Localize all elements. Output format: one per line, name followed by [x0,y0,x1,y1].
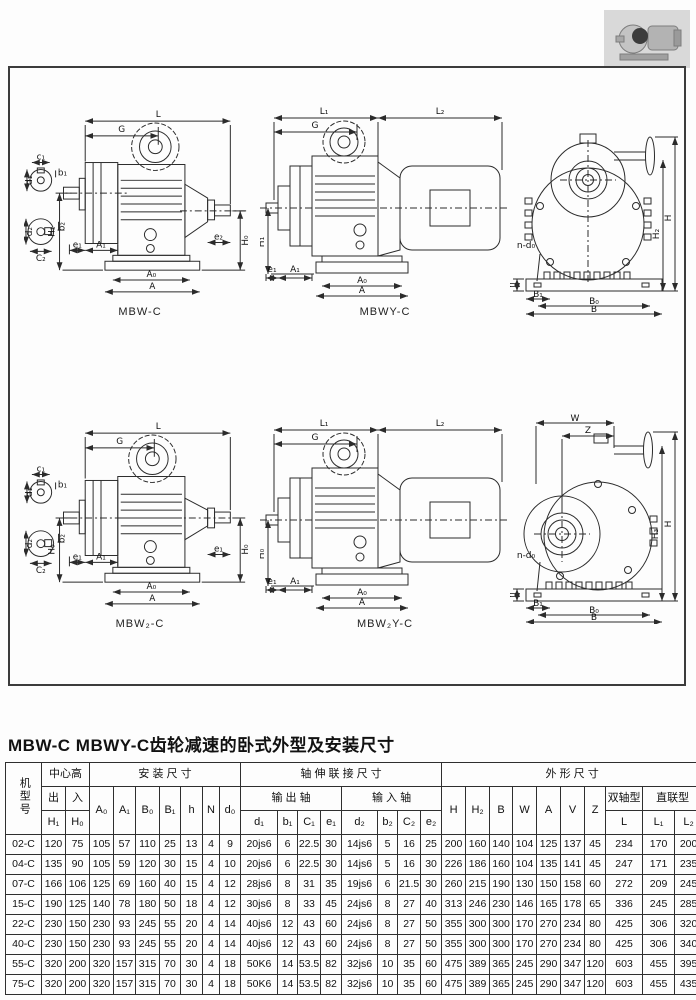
value-cell: 270 [537,935,561,955]
dim-label-A0: A₀ [147,582,157,592]
dim-label-b2: b₂ [57,534,67,543]
value-cell: 14js6 [342,835,378,855]
dim-label-A1: A₁ [96,552,106,562]
model-cell: 15-C [6,895,42,915]
value-cell: 40js6 [241,915,278,935]
mbw2y-c-side-view-drawing: L₁ L₂ G H₀ e₁ A₁ A₀ A [260,416,510,616]
dim-label-A1: A₁ [290,577,300,587]
value-cell: 171 [643,855,675,875]
header-out: 出 [42,787,66,811]
value-cell: 190 [42,895,66,915]
table-row: 02-C120751055711025134920js6622.53014js6… [6,835,696,855]
dimension-table: 机型号 中心高 安 装 尺 寸 轴 伸 联 接 尺 寸 外 形 尺 寸 出 入 … [5,762,696,995]
value-cell: 158 [561,875,585,895]
header-W: W [513,787,537,835]
value-cell: 4 [203,915,220,935]
value-cell: 200 [66,955,90,975]
value-cell: 425 [606,915,643,935]
value-cell: 82 [321,955,342,975]
value-cell: 475 [442,975,466,995]
value-cell: 12 [278,915,298,935]
dim-label-h: h [510,592,517,598]
dim-label-H0: H₀ [241,235,251,246]
value-cell: 230 [490,895,513,915]
model-cell: 55-C [6,955,42,975]
value-cell: 340 [675,935,696,955]
value-cell: 150 [66,915,90,935]
value-cell: 230 [90,915,114,935]
table-row: 07-C16610612569160401541228js68313519js6… [6,875,696,895]
value-cell: 272 [606,875,643,895]
value-cell: 16 [398,855,421,875]
value-cell: 300 [490,915,513,935]
value-cell: 20js6 [241,835,278,855]
header-center-height: 中心高 [42,763,90,787]
front-view-bottom-drawing: W Z n-d₀ h B₁ B₀ B H₃ H [510,414,682,624]
dim-label-A: A [149,282,155,292]
value-cell: 104 [513,855,537,875]
value-cell: 70 [160,955,181,975]
value-cell: 8 [278,875,298,895]
dim-label-ndo: n-d₀ [517,241,536,251]
value-cell: 55 [160,915,181,935]
value-cell: 355 [442,915,466,935]
value-cell: 234 [561,915,585,935]
value-cell: 5 [378,835,398,855]
dim-label-b1: b₁ [58,168,68,178]
value-cell: 30 [321,835,342,855]
dim-label-A0: A₀ [357,588,367,598]
dim-label-A: A [359,598,366,608]
value-cell: 166 [42,875,66,895]
value-cell: 19js6 [342,875,378,895]
header-B0: B₀ [136,787,160,835]
value-cell: 435 [675,975,696,995]
value-cell: 320 [90,975,114,995]
value-cell: 336 [606,895,643,915]
value-cell: 365 [490,955,513,975]
header-model: 机型号 [6,763,42,835]
dim-label-b2: b₂ [57,222,67,231]
dim-label-A1: A₁ [96,240,106,250]
value-cell: 12 [220,875,241,895]
value-cell: 300 [466,915,490,935]
value-cell: 105 [90,855,114,875]
value-cell: 30 [421,875,442,895]
value-cell: 245 [513,975,537,995]
value-cell: 137 [561,835,585,855]
value-cell: 6 [278,855,298,875]
value-cell: 75 [66,835,90,855]
value-cell: 45 [585,855,606,875]
dim-label-L1: L₁ [320,419,329,429]
value-cell: 20 [181,935,203,955]
value-cell: 230 [42,915,66,935]
value-cell: 69 [114,875,136,895]
value-cell: 35 [321,875,342,895]
dim-label-e2: e₂ [214,233,223,243]
header-shaft: 轴 伸 联 接 尺 寸 [241,763,442,787]
value-cell: 120 [136,855,160,875]
table-row: 22-C23015023093245552041440js612436024js… [6,915,696,935]
catalog-page: L G c₁ b₁ d₁ b₂ d₂ C₂ H₁ H₀ e₁ A₁ e₂ A₀ … [0,0,696,1000]
drawing-geometry [26,121,247,292]
header-b2: b₂ [378,811,398,835]
value-cell: 200 [442,835,466,855]
value-cell: 150 [537,875,561,895]
value-cell: 320 [42,975,66,995]
drawing-caption-mbw: MBW-C [24,306,256,318]
dim-label-A0: A₀ [147,270,157,280]
dim-label-H: H [664,521,674,528]
value-cell: 80 [585,935,606,955]
value-cell: 200 [66,975,90,995]
dim-label-G: G [116,437,123,447]
value-cell: 245 [643,895,675,915]
value-cell: 234 [606,835,643,855]
value-cell: 135 [42,855,66,875]
value-cell: 160 [490,855,513,875]
value-cell: 603 [606,955,643,975]
header-H0: H₀ [66,811,90,835]
value-cell: 8 [378,935,398,955]
value-cell: 32js6 [342,975,378,995]
value-cell: 30 [421,855,442,875]
dim-label-ndo: n-d₀ [517,551,536,561]
page-title: MBW-C MBWY-C齿轮减速的卧式外型及安装尺寸 [8,731,395,756]
value-cell: 22.5 [298,855,321,875]
value-cell: 30 [321,855,342,875]
header-double-shaft: 双轴型 [606,787,643,811]
value-cell: 315 [136,955,160,975]
value-cell: 14 [278,955,298,975]
value-cell: 40js6 [241,935,278,955]
value-cell: 82 [321,975,342,995]
value-cell: 125 [66,895,90,915]
dim-label-H1: H₁ [260,236,267,247]
dim-label-H: H [664,215,674,222]
value-cell: 247 [606,855,643,875]
value-cell: 18 [181,895,203,915]
value-cell: 60 [421,955,442,975]
value-cell: 455 [643,975,675,995]
value-cell: 246 [466,895,490,915]
value-cell: 80 [585,915,606,935]
header-mounting: 安 装 尺 寸 [90,763,241,787]
model-cell: 75-C [6,975,42,995]
value-cell: 110 [136,835,160,855]
dim-label-L2: L₂ [436,107,445,117]
product-photo [604,10,690,68]
value-cell: 27 [398,895,421,915]
value-cell: 270 [537,915,561,935]
value-cell: 93 [114,935,136,955]
value-cell: 320 [90,955,114,975]
value-cell: 4 [203,835,220,855]
dim-label-d2: d₂ [25,227,35,236]
value-cell: 6 [378,875,398,895]
value-cell: 78 [114,895,136,915]
value-cell: 120 [585,955,606,975]
value-cell: 290 [537,975,561,995]
value-cell: 57 [114,835,136,855]
value-cell: 320 [675,915,696,935]
value-cell: 230 [90,935,114,955]
dim-label-W: W [571,414,580,424]
header-d1: d₁ [241,811,278,835]
drawing-panel: L G c₁ b₁ d₁ b₂ d₂ C₂ H₁ H₀ e₁ A₁ e₂ A₀ … [8,66,686,686]
header-d2: d₂ [342,811,378,835]
header-B: B [490,787,513,835]
dim-label-G: G [312,121,319,131]
front-view-top-drawing: n-d₀ h B₁ B₀ B H₂ H [510,114,682,319]
header-output-shaft: 输 出 轴 [241,787,342,811]
dim-label-d2: d₂ [25,539,35,548]
table-row: 15-C19012514078180501841230js68334524js6… [6,895,696,915]
value-cell: 170 [513,935,537,955]
dim-label-L: L [156,110,161,120]
dim-label-C2: C₂ [36,254,46,264]
dim-label-e1: e₁ [73,240,82,250]
dim-label-e1: e₁ [73,552,82,562]
value-cell: 22.5 [298,835,321,855]
value-cell: 50 [421,935,442,955]
value-cell: 65 [585,895,606,915]
table-header: 机型号 中心高 安 装 尺 寸 轴 伸 联 接 尺 寸 外 形 尺 寸 出 入 … [6,763,696,835]
dim-label-b1: b₁ [58,480,68,490]
value-cell: 31 [298,875,321,895]
value-cell: 50 [421,915,442,935]
value-cell: 235 [675,855,696,875]
value-cell: 30 [181,975,203,995]
value-cell: 15 [181,855,203,875]
value-cell: 28js6 [241,875,278,895]
dim-label-C2: C₂ [36,566,46,576]
value-cell: 234 [561,935,585,955]
dim-label-H0-left: H₀ [48,544,58,555]
header-A1: A₁ [114,787,136,835]
value-cell: 60 [321,935,342,955]
model-cell: 22-C [6,915,42,935]
mbw2-c-side-view-drawing: L G c₁ b₁ d₁ b₂ d₂ C₂ H₀ H₀ e₁ A₁ e₁ A₀ … [24,416,256,616]
value-cell: 59 [114,855,136,875]
drawing-caption-mbwy: MBWY-C [260,306,510,318]
value-cell: 209 [643,875,675,895]
value-cell: 33 [298,895,321,915]
value-cell: 45 [585,835,606,855]
dim-label-H3: H₃ [651,528,661,539]
value-cell: 170 [643,835,675,855]
value-cell: 315 [136,975,160,995]
value-cell: 25 [160,835,181,855]
table-row: 40-C23015023093245552041440js612436024js… [6,935,696,955]
value-cell: 245 [513,955,537,975]
value-cell: 300 [466,935,490,955]
header-e1: e₁ [321,811,342,835]
value-cell: 230 [42,935,66,955]
drawing-caption-mbwy2: MBW₂Y-C [260,618,510,630]
value-cell: 10 [378,975,398,995]
header-A: A [537,787,561,835]
header-in: 入 [66,787,90,811]
value-cell: 21.5 [398,875,421,895]
value-cell: 475 [442,955,466,975]
value-cell: 32js6 [342,955,378,975]
dim-label-L: L [156,422,161,432]
value-cell: 135 [537,855,561,875]
value-cell: 25 [421,835,442,855]
value-cell: 146 [513,895,537,915]
value-cell: 141 [561,855,585,875]
dim-label-h: h [510,282,517,288]
value-cell: 13 [181,835,203,855]
value-cell: 12 [220,895,241,915]
value-cell: 43 [298,935,321,955]
value-cell: 365 [490,975,513,995]
value-cell: 43 [298,915,321,935]
value-cell: 178 [561,895,585,915]
dim-label-G: G [312,433,319,443]
value-cell: 40 [160,875,181,895]
value-cell: 4 [203,875,220,895]
value-cell: 306 [643,935,675,955]
value-cell: 106 [66,875,90,895]
dim-label-B1: B₁ [533,290,543,300]
value-cell: 157 [114,955,136,975]
drawing-geometry [26,433,247,604]
header-H1: H₁ [42,811,66,835]
drawing-geometry [513,134,678,314]
header-C1: C₁ [298,811,321,835]
drawing-caption-mbw2: MBW₂-C [24,618,256,630]
value-cell: 40 [421,895,442,915]
dim-label-e1: e₁ [267,265,277,275]
value-cell: 9 [220,835,241,855]
value-cell: 10 [378,955,398,975]
value-cell: 320 [42,955,66,975]
header-L: L [606,811,643,835]
value-cell: 16 [398,835,421,855]
dim-label-H2: H₂ [652,228,662,239]
value-cell: 313 [442,895,466,915]
value-cell: 70 [160,975,181,995]
value-cell: 245 [675,875,696,895]
value-cell: 130 [513,875,537,895]
value-cell: 30 [160,855,181,875]
table-row: 55-C320200320157315703041850K61453.58232… [6,955,696,975]
value-cell: 290 [537,955,561,975]
value-cell: 93 [114,915,136,935]
dim-label-d1: d₁ [25,175,35,185]
header-input-shaft: 输 入 轴 [342,787,442,811]
dim-label-A1: A₁ [290,265,300,275]
dim-label-e1: e₁ [267,577,277,587]
value-cell: 260 [442,875,466,895]
header-Z: Z [585,787,606,835]
dim-label-H1: H₁ [48,226,58,237]
value-cell: 160 [466,835,490,855]
table-row: 04-C1359010559120301541020js6622.53014js… [6,855,696,875]
value-cell: 50K6 [241,955,278,975]
value-cell: 45 [321,895,342,915]
value-cell: 170 [513,915,537,935]
value-cell: 125 [537,835,561,855]
value-cell: 389 [466,955,490,975]
value-cell: 14 [220,935,241,955]
header-H: H [442,787,466,835]
value-cell: 4 [203,975,220,995]
header-B1: B₁ [160,787,181,835]
value-cell: 5 [378,855,398,875]
dim-label-B: B [591,613,597,623]
header-H2: H₂ [466,787,490,835]
value-cell: 285 [675,895,696,915]
value-cell: 140 [490,835,513,855]
dim-label-H0: H₀ [260,548,267,559]
value-cell: 14 [220,915,241,935]
value-cell: 35 [398,975,421,995]
value-cell: 347 [561,975,585,995]
dim-label-L2: L₂ [436,419,445,429]
value-cell: 125 [90,875,114,895]
table-body: 02-C120751055711025134920js6622.53014js6… [6,835,696,995]
header-e2: e₂ [421,811,442,835]
mbw-c-side-view-drawing: L G c₁ b₁ d₁ b₂ d₂ C₂ H₁ H₀ e₁ A₁ e₂ A₀ … [24,104,256,304]
value-cell: 157 [114,975,136,995]
model-cell: 07-C [6,875,42,895]
header-V: V [561,787,585,835]
value-cell: 24js6 [342,895,378,915]
header-L2: L₂ [675,811,696,835]
value-cell: 4 [203,895,220,915]
value-cell: 104 [513,835,537,855]
value-cell: 180 [136,895,160,915]
dim-label-c1: c₁ [37,153,46,163]
dim-label-d1: d₁ [25,487,35,497]
value-cell: 150 [66,935,90,955]
value-cell: 120 [585,975,606,995]
value-cell: 8 [378,915,398,935]
model-cell: 04-C [6,855,42,875]
value-cell: 306 [643,915,675,935]
value-cell: 50K6 [241,975,278,995]
value-cell: 603 [606,975,643,995]
value-cell: 4 [203,935,220,955]
value-cell: 8 [378,895,398,915]
value-cell: 425 [606,935,643,955]
value-cell: 53.5 [298,955,321,975]
drawing-geometry [513,423,678,622]
value-cell: 120 [42,835,66,855]
value-cell: 190 [490,875,513,895]
dim-label-A: A [149,594,155,604]
header-b1: b₁ [278,811,298,835]
model-cell: 40-C [6,935,42,955]
value-cell: 18 [220,955,241,975]
value-cell: 245 [136,915,160,935]
value-cell: 395 [675,955,696,975]
value-cell: 4 [203,955,220,975]
value-cell: 14js6 [342,855,378,875]
dim-label-Z: Z [585,426,591,436]
value-cell: 20 [181,915,203,935]
value-cell: 226 [442,855,466,875]
value-cell: 60 [421,975,442,995]
dim-label-A0: A₀ [357,276,367,286]
value-cell: 186 [466,855,490,875]
value-cell: 355 [442,935,466,955]
value-cell: 10 [220,855,241,875]
